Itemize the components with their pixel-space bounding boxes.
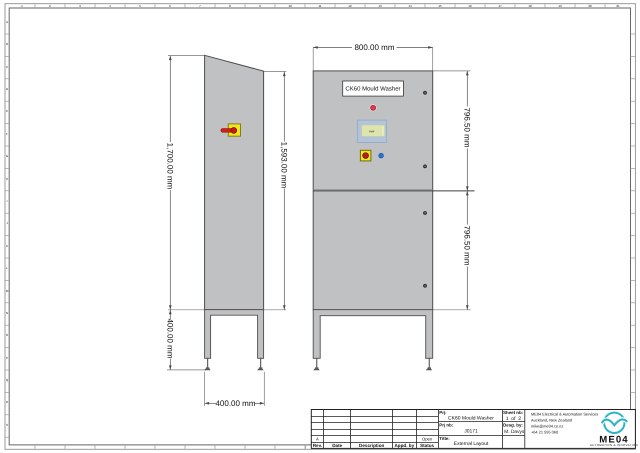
svg-text:Status: Status — [420, 443, 434, 448]
svg-text:15: 15 — [438, 4, 442, 8]
svg-text:16: 16 — [468, 4, 472, 8]
svg-text:Prj nb:: Prj nb: — [439, 422, 453, 427]
svg-text:20: 20 — [588, 4, 592, 8]
svg-text:796.50 mm: 796.50 mm — [462, 107, 471, 147]
svg-text:14: 14 — [408, 4, 412, 8]
svg-text:10: 10 — [288, 4, 292, 8]
svg-text:CK60 Mould Washer: CK60 Mould Washer — [345, 86, 400, 93]
svg-text:Desg. by:: Desg. by: — [503, 422, 523, 427]
svg-text:1,593.00 mm: 1,593.00 mm — [279, 142, 288, 189]
svg-text:19: 19 — [558, 4, 562, 8]
svg-text:Auckland, New Zealand: Auckland, New Zealand — [531, 418, 572, 423]
svg-text:400.00 mm: 400.00 mm — [215, 399, 255, 408]
svg-text:mike@me04.co.nz: mike@me04.co.nz — [531, 423, 563, 428]
svg-text:E: E — [6, 109, 8, 113]
svg-text:1,700.00 mm: 1,700.00 mm — [165, 143, 174, 190]
svg-text:400.00 mm: 400.00 mm — [165, 318, 174, 358]
svg-text:800.00 mm: 800.00 mm — [354, 43, 394, 52]
svg-text:External Layout: External Layout — [454, 441, 489, 447]
svg-text:M. Davys: M. Davys — [504, 429, 525, 435]
svg-text:B: B — [6, 42, 8, 46]
svg-text:17: 17 — [498, 4, 502, 8]
svg-text:18: 18 — [528, 4, 532, 8]
svg-text:S: S — [6, 423, 8, 427]
svg-text:796.50 mm: 796.50 mm — [462, 225, 471, 265]
svg-text:Appd. by: Appd. by — [394, 443, 414, 448]
svg-text:J0171: J0171 — [464, 429, 478, 435]
svg-text:Rev.: Rev. — [313, 443, 322, 448]
svg-text:P: P — [6, 356, 8, 360]
svg-text:11: 11 — [318, 4, 321, 8]
svg-text:+64 21 555 060: +64 21 555 060 — [531, 429, 559, 434]
svg-text:AUTOMATION & INNOVATION: AUTOMATION & INNOVATION — [590, 443, 638, 447]
svg-text:13: 13 — [378, 4, 382, 8]
svg-text:###: ### — [369, 129, 375, 133]
svg-text:A: A — [316, 437, 319, 442]
svg-text:Open: Open — [422, 437, 433, 442]
svg-text:Description: Description — [359, 443, 384, 448]
svg-text:I: I — [7, 199, 8, 203]
svg-text:12: 12 — [348, 4, 352, 8]
svg-text:N: N — [6, 311, 8, 315]
svg-text:Title:: Title: — [439, 436, 450, 441]
svg-text:CK60 Mould Washer: CK60 Mould Washer — [448, 416, 494, 422]
svg-text:K: K — [6, 244, 8, 248]
svg-text:ME04 Electrical & Automation S: ME04 Electrical & Automation Services — [531, 412, 598, 417]
svg-text:H: H — [6, 177, 8, 181]
svg-text:1 of 2: 1 of 2 — [506, 416, 522, 422]
svg-text:21: 21 — [616, 4, 620, 8]
svg-text:Prj:: Prj: — [439, 410, 447, 415]
svg-text:A: A — [6, 20, 8, 24]
svg-text:Date: Date — [332, 443, 342, 448]
svg-text:Sheet nb:: Sheet nb: — [503, 410, 524, 415]
svg-text:F: F — [6, 132, 8, 136]
